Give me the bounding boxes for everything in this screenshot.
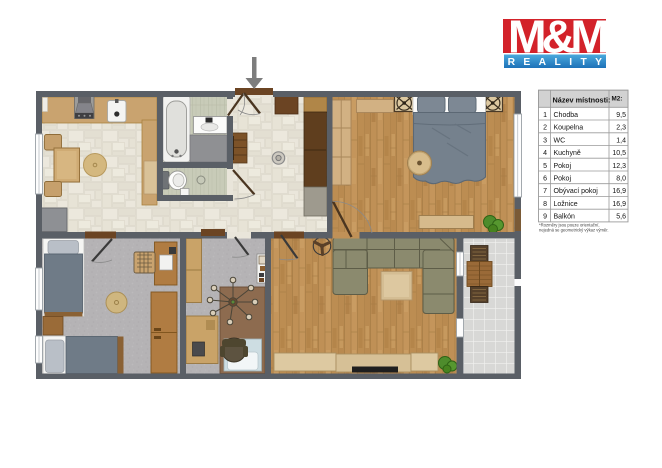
svg-text:Název místnosti:: Název místnosti: [553,96,611,105]
svg-text:Pokoj: Pokoj [554,176,572,183]
svg-text:REALITY: REALITY [508,57,611,68]
svg-text:Chodba: Chodba [554,112,579,119]
svg-text:16,9: 16,9 [612,201,626,208]
svg-text:6: 6 [543,176,547,183]
svg-text:1: 1 [543,112,547,119]
svg-text:Obývací pokoj: Obývací pokoj [554,188,599,195]
svg-text:M2:: M2: [612,96,623,103]
svg-text:Koupelna: Koupelna [554,125,584,132]
svg-text:12,3: 12,3 [612,163,626,170]
svg-text:10,5: 10,5 [612,150,626,157]
svg-text:8: 8 [543,201,547,208]
svg-text:5: 5 [543,163,547,170]
svg-text:Kuchyně: Kuchyně [554,150,581,157]
svg-text:16,9: 16,9 [612,188,626,195]
svg-text:5,6: 5,6 [616,214,626,221]
svg-text:3: 3 [543,137,547,144]
svg-text:2: 2 [543,125,547,132]
svg-text:9: 9 [543,214,547,221]
svg-text:Ložnice: Ložnice [554,201,578,208]
svg-text:Pokoj: Pokoj [554,163,572,170]
svg-text:7: 7 [543,188,547,195]
svg-text:9,5: 9,5 [616,112,626,119]
svg-text:WC: WC [554,137,566,144]
svg-text:4: 4 [543,150,547,157]
svg-text:nejedná se geometrický výkaz v: nejedná se geometrický výkaz výměr. [539,228,609,233]
svg-text:2,3: 2,3 [616,125,626,132]
svg-text:8,0: 8,0 [616,176,626,183]
svg-text:1,4: 1,4 [616,137,626,144]
svg-text:Balkón: Balkón [554,214,576,221]
